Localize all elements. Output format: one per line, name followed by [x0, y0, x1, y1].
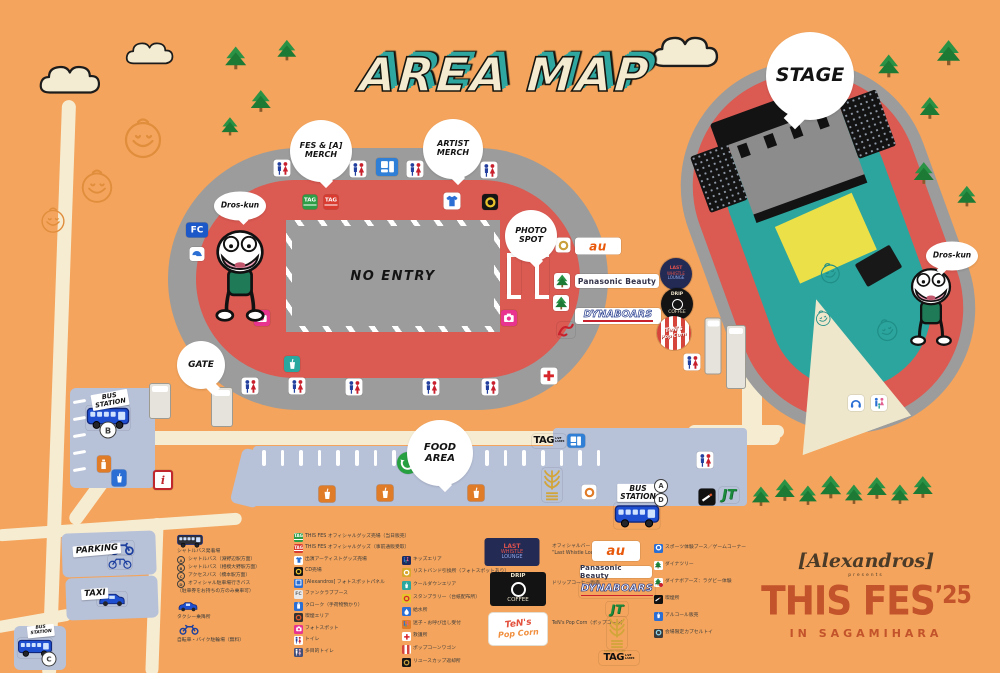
dros-kun-1-bubble: Dros-kun: [214, 191, 266, 220]
fes-merch-label: MERCH: [305, 151, 337, 160]
restroom-icon: [346, 379, 363, 396]
photo-frame-icon-box: [507, 256, 521, 296]
tree: [890, 481, 912, 512]
legend-tag-logo: TAGLIVELANES: [599, 651, 639, 665]
legend-transport-line: Cアクセスバス（橋本駅方面）: [177, 572, 250, 580]
tree: [866, 473, 891, 507]
legend-item-label: ダイナボアーズ：ラグビー体験: [665, 580, 732, 585]
stall-divider: [262, 450, 266, 466]
tree: [956, 182, 979, 214]
au-logo: au: [575, 238, 621, 255]
legend-item-icon: [402, 632, 411, 641]
merch-tag-red-icon: TAG: [324, 195, 339, 210]
tree-booth-icon: [554, 273, 570, 289]
legend-item-label: リユースカップ返却所: [413, 660, 461, 665]
tree: [224, 42, 250, 78]
dros-kun-character: [213, 227, 267, 327]
gate-tower: [726, 325, 746, 389]
gate-label: GATE: [188, 360, 214, 370]
drink-stand-icon: [284, 356, 300, 372]
cap-goods-icon-box: [190, 247, 205, 261]
legend-item-label: スタンプラリー（台紙配布所）: [413, 596, 480, 601]
legend-transport-line: シャトルバス発着場: [177, 548, 220, 556]
stall-divider: [299, 450, 303, 466]
legend-item: 迷子・お呼び出し受付: [402, 619, 461, 629]
cloud: [648, 25, 740, 75]
no-entry-zone: NO ENTRY: [286, 220, 500, 332]
legend-item: ダイナツリー: [654, 560, 694, 570]
legend-transport-line: Bシャトルバス（相模大野駅方面）: [177, 564, 260, 572]
legend-item-icon: [294, 648, 303, 657]
restroom-icon: [274, 160, 291, 177]
merch-tag-green-icon: TAG: [303, 195, 318, 210]
legend-transport-text: （駐車券をお持ちの方のみ乗車可）: [177, 590, 254, 595]
legend-item-label: キッズエリア: [413, 558, 442, 563]
restroom-icon: [242, 378, 259, 395]
legend-item: キッズエリア: [402, 555, 442, 565]
tree: [919, 93, 944, 127]
legend-item-label: 喫煙エリア: [305, 615, 329, 620]
legend-item: 喫煙エリア: [294, 613, 329, 623]
legend-taxi-label: タクシー乗降所: [177, 616, 211, 621]
food-area-label: AREA: [425, 453, 455, 464]
legend-transport-line: Aシャトルバス（淵野辺駅方面）: [177, 556, 255, 564]
facility-sign-icon-box: [376, 158, 398, 176]
legend-item: 救護所: [402, 632, 427, 642]
photo-spot-bubble: PHOTOSPOT: [505, 210, 557, 262]
legend-item: 多目的トイレ: [294, 647, 334, 657]
legend-bike-label: 自転車・バイク駐輪場（無料）: [177, 639, 244, 644]
coffee-booth-badge: DRIPCOFFEE: [661, 288, 693, 320]
restroom-icon-box: [242, 378, 259, 395]
stall-divider: [336, 450, 340, 466]
stall-divider: [392, 450, 396, 466]
legend-item-icon: [294, 602, 303, 611]
fes-merch-bubble: FES & [A]MERCH: [290, 120, 352, 182]
tree: [819, 471, 845, 507]
restroom-icon: [481, 162, 498, 179]
legend-badge-D: D: [177, 580, 185, 588]
first-aid-icon-box: [541, 368, 558, 385]
lounge-booth-badge: LASTWHISTLELOUNGE: [660, 258, 692, 290]
stall-divider: [541, 450, 545, 466]
vending-machine-icon: [97, 456, 111, 473]
legend-item-label: THIS FES オフィシャルグッズ売場（当日販売）: [305, 535, 409, 540]
legend-item: スタンプラリー（台紙配布所）: [402, 593, 480, 603]
legend-transport-line: Dオフィシャル駐車場行きバス: [177, 580, 250, 588]
tree: [913, 158, 938, 192]
tag-logo: TAGLIVELANES: [532, 434, 566, 448]
ear-protection-icon-box: [848, 395, 864, 411]
information-icon-box: i: [153, 470, 173, 490]
stall-divider: [597, 450, 601, 466]
legend-item: TAGTHIS FES オフィシャルグッズ売場（当日販売）: [294, 532, 409, 542]
legend-dynaboars-logo: DYNABOARS: [579, 582, 655, 598]
stage-bubble: STAGE: [766, 32, 854, 120]
restroom-icon: [407, 161, 424, 178]
legend-item-label: スポーツ体験ブース／ゲームコーナー: [665, 546, 746, 551]
bus-station-ad-sign: BUSSTATION: [617, 484, 659, 502]
legend-jt-logo: JT: [606, 602, 628, 617]
page-title: AREA MAP: [350, 48, 660, 103]
legend-item-label: 多目的トイレ: [305, 650, 334, 655]
station-letter-A: A: [654, 479, 668, 493]
brand-block: [Alexandros] presents THIS FES’25 IN SAG…: [738, 552, 994, 640]
spring-valley-logo: [542, 468, 562, 502]
legend-item-icon: [402, 645, 411, 654]
legend-item-label: 会場限定カプセルトイ: [665, 631, 713, 636]
dynaboars-mascot-icon-box: [557, 322, 575, 338]
stall-divider: [281, 450, 285, 466]
stall-divider: [560, 450, 564, 466]
bus-station-ad-sign-label: STATION: [620, 493, 656, 501]
food-stall-icon-box: [319, 486, 336, 503]
family-restroom-icon-box: [871, 395, 887, 411]
fan-club-icon-box: FC: [186, 223, 208, 238]
legend-item-icon: [654, 595, 663, 604]
tree: [774, 475, 799, 509]
legend-item-label: 迷子・お呼び出し受付: [413, 622, 461, 627]
legend-item-icon: [294, 613, 303, 622]
food-stall-icon: [377, 485, 394, 502]
legend-tag-logo-box: TAGLIVELANES: [599, 651, 639, 665]
stage-label: STAGE: [776, 65, 844, 86]
tree: [221, 114, 242, 143]
fes-location: IN SAGAMIHARA: [738, 627, 994, 640]
smoking-area-icon: [699, 489, 716, 506]
information-icon: i: [153, 470, 173, 490]
taxi-sign-label: TAXI: [84, 589, 106, 600]
legend-spring-valley-logo: [607, 617, 627, 649]
facility-sign-icon: [567, 434, 585, 448]
legend-item-label: ポップコーンワゴン: [413, 647, 456, 652]
bicycle-icon-box: [108, 555, 132, 570]
stall-divider: [318, 450, 322, 466]
legend-item: TAGTHIS FES オフィシャルグッズ（事前通販受取）: [294, 544, 409, 554]
no-entry-label: NO ENTRY: [350, 269, 435, 284]
legend-item-label: 給水所: [413, 609, 427, 614]
legend-moto-icon: [179, 623, 199, 635]
cloud: [36, 55, 120, 100]
restroom-icon-box: [407, 161, 424, 178]
fes-logo: THIS FES’25: [738, 582, 994, 622]
legend-badge-A: A: [177, 556, 185, 564]
vendor-badge-2: TeN'sPop Corn: [489, 613, 547, 645]
legend-item-label: クローク（手荷物預かり）: [305, 604, 363, 609]
legend-transport-line: （駐車券をお持ちの方のみ乗車可）: [177, 588, 254, 596]
legend-item-label: CD売場: [305, 569, 322, 574]
smiley-doodle: [118, 113, 168, 163]
tree-booth-icon-box: [553, 295, 569, 311]
stall-divider: [485, 450, 489, 466]
bicycle-icon: [108, 555, 132, 570]
legend-taxi: タクシー乗降所: [177, 613, 211, 623]
legend-bus-icon: [177, 534, 204, 549]
facility-sign-icon: [376, 158, 398, 176]
smoking-area-icon-box: [699, 489, 716, 506]
vending-machine-icon-box: [97, 456, 111, 473]
legend-taxi-icon: [177, 601, 199, 612]
bus-station-c-sign-label: STATION: [30, 630, 52, 637]
food-area-bubble: FOODAREA: [407, 420, 473, 486]
legend-item: 給水所: [402, 606, 427, 616]
restroom-icon-box: [289, 378, 306, 395]
food-stall-icon: [468, 485, 485, 502]
family-restroom-icon: [871, 395, 887, 411]
legend-item: CD売場: [294, 567, 322, 577]
ear-protection-icon: [848, 395, 864, 411]
legend-item-icon: [294, 579, 303, 588]
stall-divider: [504, 450, 508, 466]
legend-item-label: [Alexandros] フォトスポットパネル: [305, 581, 385, 586]
legend-item-icon: [654, 629, 663, 638]
legend-au-logo-box: au: [592, 541, 640, 561]
legend-item-label: トイレ: [305, 638, 319, 643]
restroom-icon-box: [350, 161, 367, 178]
legend-item-icon: [294, 625, 303, 634]
food-badge-icon-box: [582, 485, 597, 500]
legend-badge-C: C: [177, 572, 185, 580]
restroom-icon: [684, 354, 701, 371]
legend-item-label: アルコール販売: [665, 614, 698, 619]
legend-badge-B: B: [177, 564, 185, 572]
merch-tag-green-icon-box: TAG: [303, 195, 318, 210]
legend-item-icon: FC: [294, 590, 303, 599]
stall-divider: [374, 450, 378, 466]
food-stall-icon-box: [468, 485, 485, 502]
smiley-doodle: [37, 204, 69, 236]
cap-goods-icon: [190, 247, 205, 261]
legend-item-icon: [402, 620, 411, 629]
restroom-icon: [289, 378, 306, 395]
cd-shop-icon-box: [482, 194, 498, 210]
food-badge-icon: [582, 485, 597, 500]
legend-item: リユースカップ返却所: [402, 657, 461, 667]
legend-item-icon: TAG: [294, 533, 303, 542]
food-stall-icon: [319, 486, 336, 503]
legend-item: スポーツ体験ブース／ゲームコーナー: [654, 543, 746, 553]
legend-item-label: 喫煙所: [665, 597, 679, 602]
legend-bike: 自転車・バイク駐輪場（無料）: [177, 636, 244, 646]
jt-logo: JT: [719, 487, 739, 503]
photo-spot-label: SPOT: [519, 236, 543, 245]
legend-item-label: クールダウンエリア: [413, 583, 456, 588]
vendor-badge-0: LASTWHISTLELOUNGE: [485, 538, 540, 566]
legend-jt-logo-box: JT: [606, 602, 628, 617]
restroom-icon-box: [346, 379, 363, 396]
legend-item-icon: [654, 544, 663, 553]
artist-merch-bubble: ARTISTMERCH: [423, 119, 483, 179]
artist-merch-icon: [444, 193, 461, 210]
photo-frame-icon: [507, 256, 521, 296]
tree: [844, 481, 866, 512]
tree: [798, 482, 820, 513]
drink-vending-icon-box: [112, 470, 127, 487]
gate-bubble: GATE: [177, 341, 225, 389]
artist-logo: [Alexandros]: [738, 552, 994, 571]
legend-transport-text: アクセスバス（橋本駅方面）: [188, 574, 250, 579]
legend-item: アルコール販売: [654, 611, 698, 621]
legend-item-icon: [402, 607, 411, 616]
cd-shop-icon: [482, 194, 498, 210]
dynaboars-logo: DYNABOARS: [575, 308, 661, 324]
dros-kun-1-label: Dros-kun: [221, 202, 259, 210]
legend-item: ポップコーンワゴン: [402, 645, 456, 655]
legend-transport-text: シャトルバス発着場: [177, 550, 220, 555]
cloud: [123, 34, 189, 70]
legend-item: 会場限定カプセルトイ: [654, 628, 713, 638]
restroom-icon-box: [684, 354, 701, 371]
tree: [276, 36, 299, 68]
facility-sign-icon-box: [567, 434, 585, 448]
legend-item-label: ダイナツリー: [665, 563, 694, 568]
legend-item: FCファンクラブブース: [294, 590, 348, 600]
legend-item-icon: [654, 561, 663, 570]
drink-stand-icon-box: [284, 356, 300, 372]
legend-panasonic-logo-box: Panasonic Beauty: [580, 566, 652, 578]
restroom-icon: [482, 379, 499, 396]
legend-dynaboars-logo-box: DYNABOARS: [579, 582, 655, 598]
photo-spot-icon: [501, 310, 517, 326]
taxi-sign: TAXI: [81, 587, 109, 600]
restroom-icon: [697, 452, 714, 469]
tree: [936, 35, 965, 75]
legend-item-label: 出演アーティストグッズ売場: [305, 558, 367, 563]
legend-item-icon: [294, 567, 303, 576]
tree-booth-icon-box: [554, 273, 570, 289]
station-letter-D: D: [654, 493, 668, 507]
legend-item-icon: [402, 594, 411, 603]
stall-divider: [578, 450, 582, 466]
legend-item: ダイナボアーズ：ラグビー体験: [654, 577, 732, 587]
tag-logo-box: TAGLIVELANES: [532, 434, 566, 448]
restroom-icon-box: [481, 162, 498, 179]
restroom-icon-box: [482, 379, 499, 396]
au-logo-box: au: [575, 238, 621, 255]
photo-spot-icon-box: [501, 310, 517, 326]
tree: [250, 86, 275, 120]
legend-item: [Alexandros] フォトスポットパネル: [294, 578, 385, 588]
tree: [912, 472, 937, 506]
dynaboars-mascot-icon: [557, 322, 575, 338]
smiley-doodle: [76, 165, 118, 207]
vendor-badge-1: DRIPCOFFEE: [490, 572, 546, 606]
dynaboars-logo-box: DYNABOARS: [575, 308, 661, 324]
legend-item: クローク（手荷物預かり）: [294, 601, 363, 611]
merch-tag-red-icon-box: TAG: [324, 195, 339, 210]
panasonic-beauty-logo-box: Panasonic Beauty: [575, 274, 659, 288]
dros-kun-2-label: Dros-kun: [933, 252, 971, 260]
restroom-icon: [350, 161, 367, 178]
legend-item-icon: [654, 612, 663, 621]
sponsor-emblem-icon-box: [556, 238, 571, 253]
gate-tower: [705, 318, 722, 375]
first-aid-icon: [541, 368, 558, 385]
legend-au-logo: au: [592, 541, 640, 561]
legend-item: クールダウンエリア: [402, 581, 456, 591]
artist-merch-label: MERCH: [437, 149, 469, 158]
legend-item-icon: [294, 636, 303, 645]
legend-item-icon: [402, 568, 411, 577]
restroom-icon-box: [697, 452, 714, 469]
legend-item-icon: [402, 556, 411, 565]
legend-spring-valley-logo-box: [607, 617, 627, 649]
stall-divider: [355, 450, 359, 466]
restroom-icon-box: [274, 160, 291, 177]
presents-label: presents: [738, 573, 994, 578]
legend-item: トイレ: [294, 636, 319, 646]
artist-merch-icon-box: [444, 193, 461, 210]
station-letter-C: C: [42, 652, 57, 667]
fan-club-icon: FC: [186, 223, 208, 238]
tree-booth-icon: [553, 295, 569, 311]
bus-icon-box: [614, 503, 660, 529]
legend-item-icon: [654, 578, 663, 587]
station-letter-B: B: [100, 422, 117, 439]
legend-transport-text: シャトルバス（相模大野駅方面）: [188, 566, 260, 571]
popcorn-booth-badge: TeN'sPop Corn: [657, 316, 691, 350]
dros-kun-character: [908, 266, 954, 351]
festival-area-map: NO ENTRY AREA MAP [Alexandros] presents …: [0, 0, 1000, 673]
restroom-icon-box: [423, 379, 440, 396]
legend-transport-text: シャトルバス（淵野辺駅方面）: [188, 558, 255, 563]
legend-item: 出演アーティストグッズ売場: [294, 555, 367, 565]
legend-item: フォトスポット: [294, 624, 339, 634]
legend-panasonic-logo: Panasonic Beauty: [580, 566, 652, 578]
drink-vending-icon: [112, 470, 127, 487]
spring-valley-logo-box: [542, 468, 562, 502]
gate-tower: [149, 383, 171, 419]
legend-transport-text: オフィシャル駐車場行きバス: [188, 582, 250, 587]
legend-item-label: 救護所: [413, 634, 427, 639]
tree: [877, 50, 903, 86]
tree: [751, 483, 773, 514]
bus-icon: [614, 503, 660, 529]
legend-item-label: THIS FES オフィシャルグッズ（事前通販受取）: [305, 546, 409, 551]
sponsor-emblem-icon: [556, 238, 571, 253]
dros-kun-2-bubble: Dros-kun: [926, 241, 978, 270]
legend-item-label: フォトスポット: [305, 627, 339, 632]
restroom-icon: [423, 379, 440, 396]
legend-item-icon: [402, 581, 411, 590]
legend-item-icon: [294, 556, 303, 565]
stall-divider: [522, 450, 526, 466]
legend-item-icon: [402, 658, 411, 667]
legend-item-icon: TAG: [294, 544, 303, 553]
legend-item-label: ファンクラブブース: [305, 592, 348, 597]
panasonic-beauty-logo: Panasonic Beauty: [575, 274, 659, 288]
food-area-label: FOOD: [424, 442, 456, 453]
food-stall-icon-box: [377, 485, 394, 502]
jt-logo-box: JT: [719, 487, 739, 503]
legend-item: 喫煙所: [654, 594, 679, 604]
